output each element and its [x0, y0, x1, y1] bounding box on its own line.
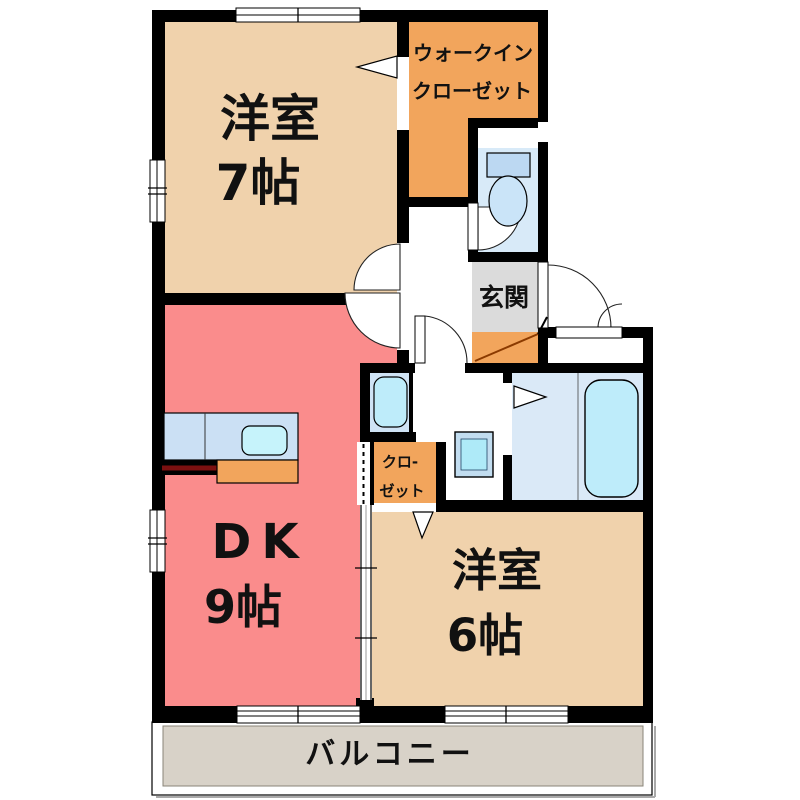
western-room-6-label: 洋室 [452, 544, 542, 597]
bathtub [585, 380, 638, 497]
floor-plan-page: バルコニー [0, 0, 800, 800]
window-top-7mat [236, 8, 360, 22]
window-bottom-dk [237, 706, 360, 723]
western-room-7-label: 洋室 [220, 90, 320, 148]
wall-segment [468, 252, 548, 262]
washroom-door-leaf [415, 316, 425, 363]
wall-segment [360, 432, 416, 442]
floor-plan-drawing: バルコニー [0, 0, 800, 800]
wall-segment [409, 370, 413, 432]
western-room-6-size: 6帖 [447, 609, 523, 662]
walk-in-closet-label2: クローゼット [412, 79, 532, 103]
window-left-7mat [148, 160, 167, 222]
wall-segment [436, 500, 653, 512]
closet-opening [374, 503, 436, 512]
dk-label: DK [211, 514, 308, 570]
wall-segment [152, 10, 165, 723]
toilet-icon [487, 153, 530, 226]
window-bottom-6mat [445, 706, 568, 723]
western-room-7-size: 7帖 [216, 154, 301, 212]
wall-segment [152, 706, 653, 723]
toilet-bowl [489, 176, 527, 226]
walk-in-closet-label: ウォークイン [413, 41, 533, 65]
kitchen-cabinet [217, 460, 298, 483]
wall-segment [643, 327, 653, 723]
walk-in-closet-floor [409, 22, 538, 118]
wall-segment [468, 118, 548, 128]
wall-segment [370, 442, 374, 505]
washer-pan [374, 377, 407, 427]
entrance-door-threshold [556, 327, 622, 338]
washing-machine-pan-icon [374, 377, 407, 427]
bathtub-icon [578, 373, 638, 500]
washroom-door-opening [415, 363, 465, 373]
genkan-label: 玄関 [479, 283, 529, 312]
toilet-window-opening [538, 122, 548, 142]
walk-in-closet-floor [409, 118, 468, 197]
washbasin-bowl [461, 439, 487, 470]
balcony-label: バルコニー [305, 737, 474, 772]
dk-floor [165, 305, 360, 706]
toilet-top-opening [478, 128, 538, 148]
toilet-door-leaf [468, 203, 478, 250]
wall-segment [360, 368, 370, 442]
bathroom-door-opening [503, 383, 512, 455]
closet-label: クロ- [382, 453, 418, 471]
toilet-tank [487, 153, 530, 177]
wall-segment [622, 327, 643, 338]
kitchen-sink [242, 426, 287, 455]
wic-door-opening [397, 57, 409, 130]
closet-label2: ゼット [379, 482, 424, 500]
window-left-dk [148, 510, 167, 572]
dk-size: 9帖 [204, 580, 282, 634]
balcony: バルコニー [152, 722, 655, 797]
wall-segment [397, 197, 478, 207]
closet-dashed-edge [357, 442, 370, 505]
washbasin-icon [455, 432, 493, 477]
